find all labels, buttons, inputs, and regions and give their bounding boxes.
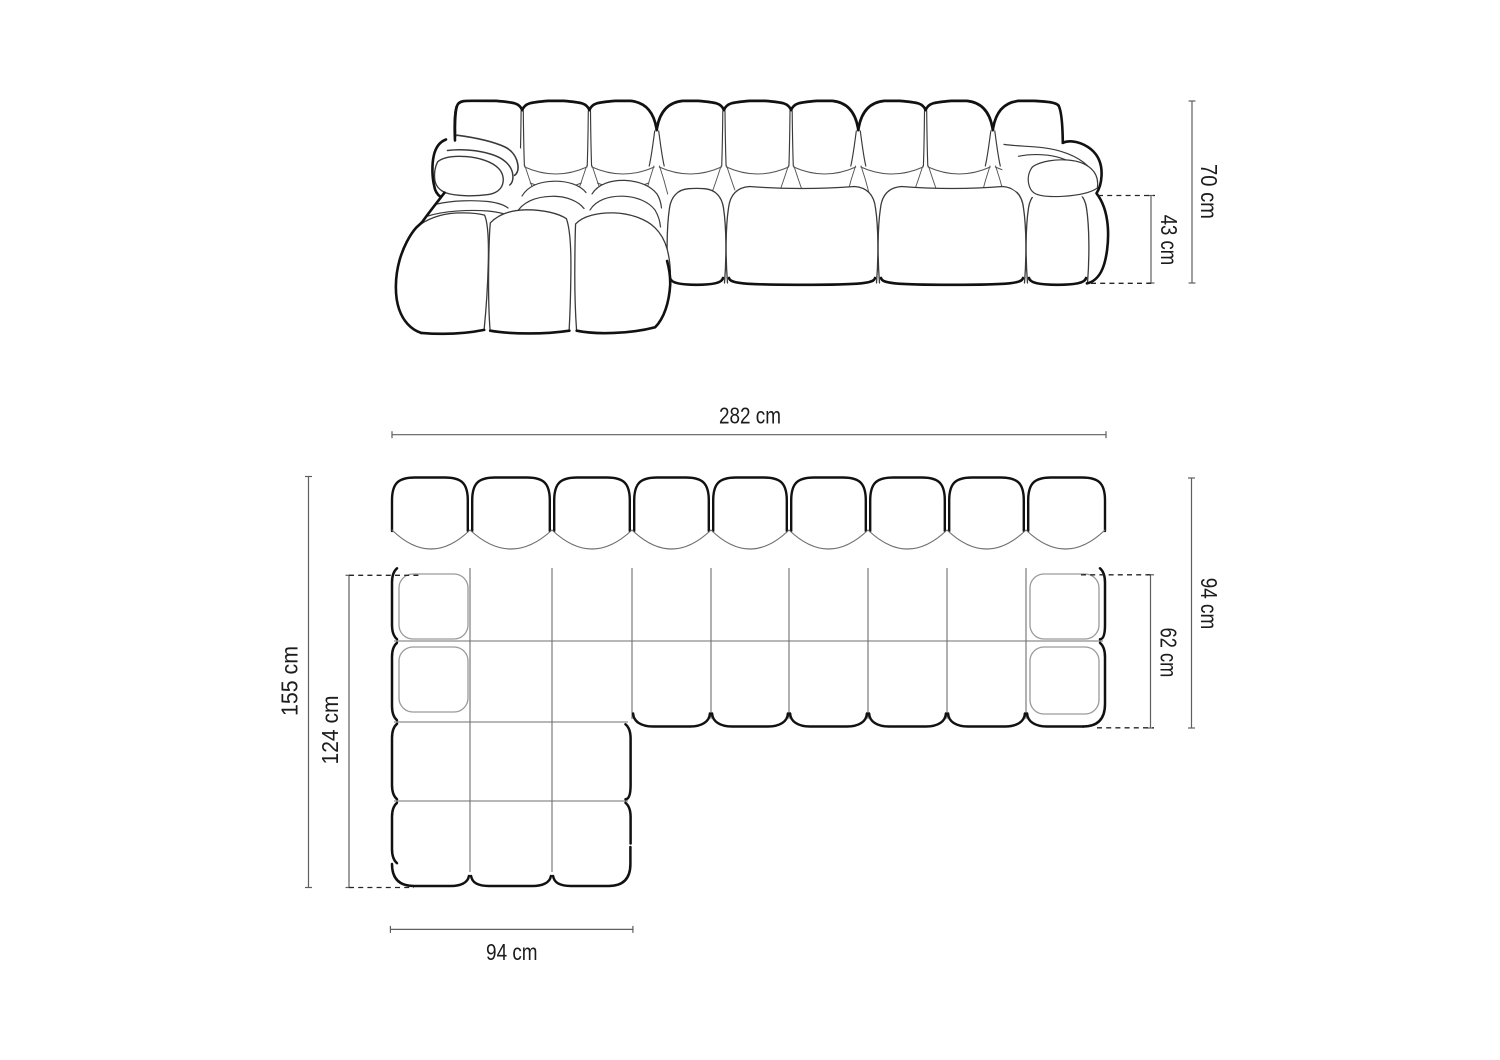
svg-text:70 cm: 70 cm — [1196, 164, 1222, 219]
svg-text:94 cm: 94 cm — [1196, 578, 1222, 630]
svg-text:94 cm: 94 cm — [486, 939, 538, 965]
svg-text:155 cm: 155 cm — [277, 646, 303, 716]
svg-text:282 cm: 282 cm — [719, 403, 781, 429]
svg-text:124 cm: 124 cm — [317, 696, 343, 765]
svg-text:43 cm: 43 cm — [1156, 215, 1182, 266]
svg-text:62 cm: 62 cm — [1156, 628, 1182, 678]
